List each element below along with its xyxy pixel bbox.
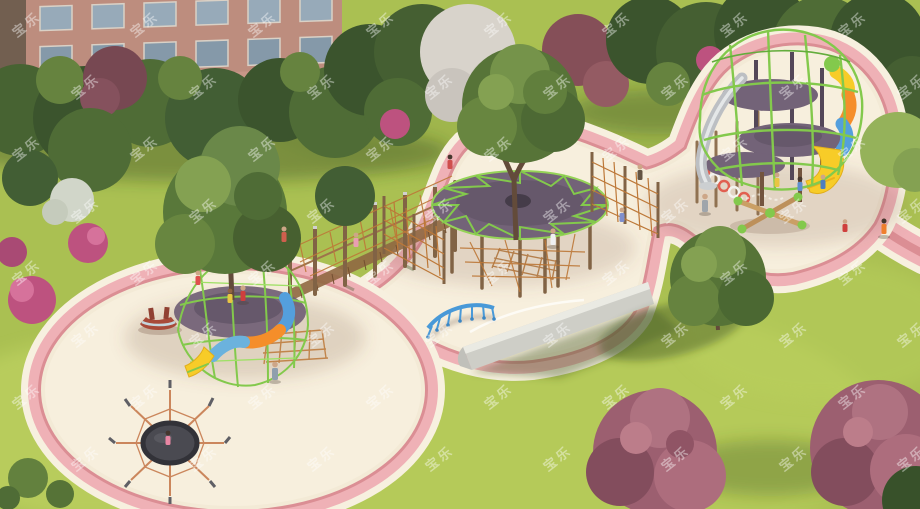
scene-canvas — [0, 0, 920, 509]
light-overlay — [0, 0, 920, 509]
playground-render: Aerial 3D rendering of a children's play… — [0, 0, 920, 509]
